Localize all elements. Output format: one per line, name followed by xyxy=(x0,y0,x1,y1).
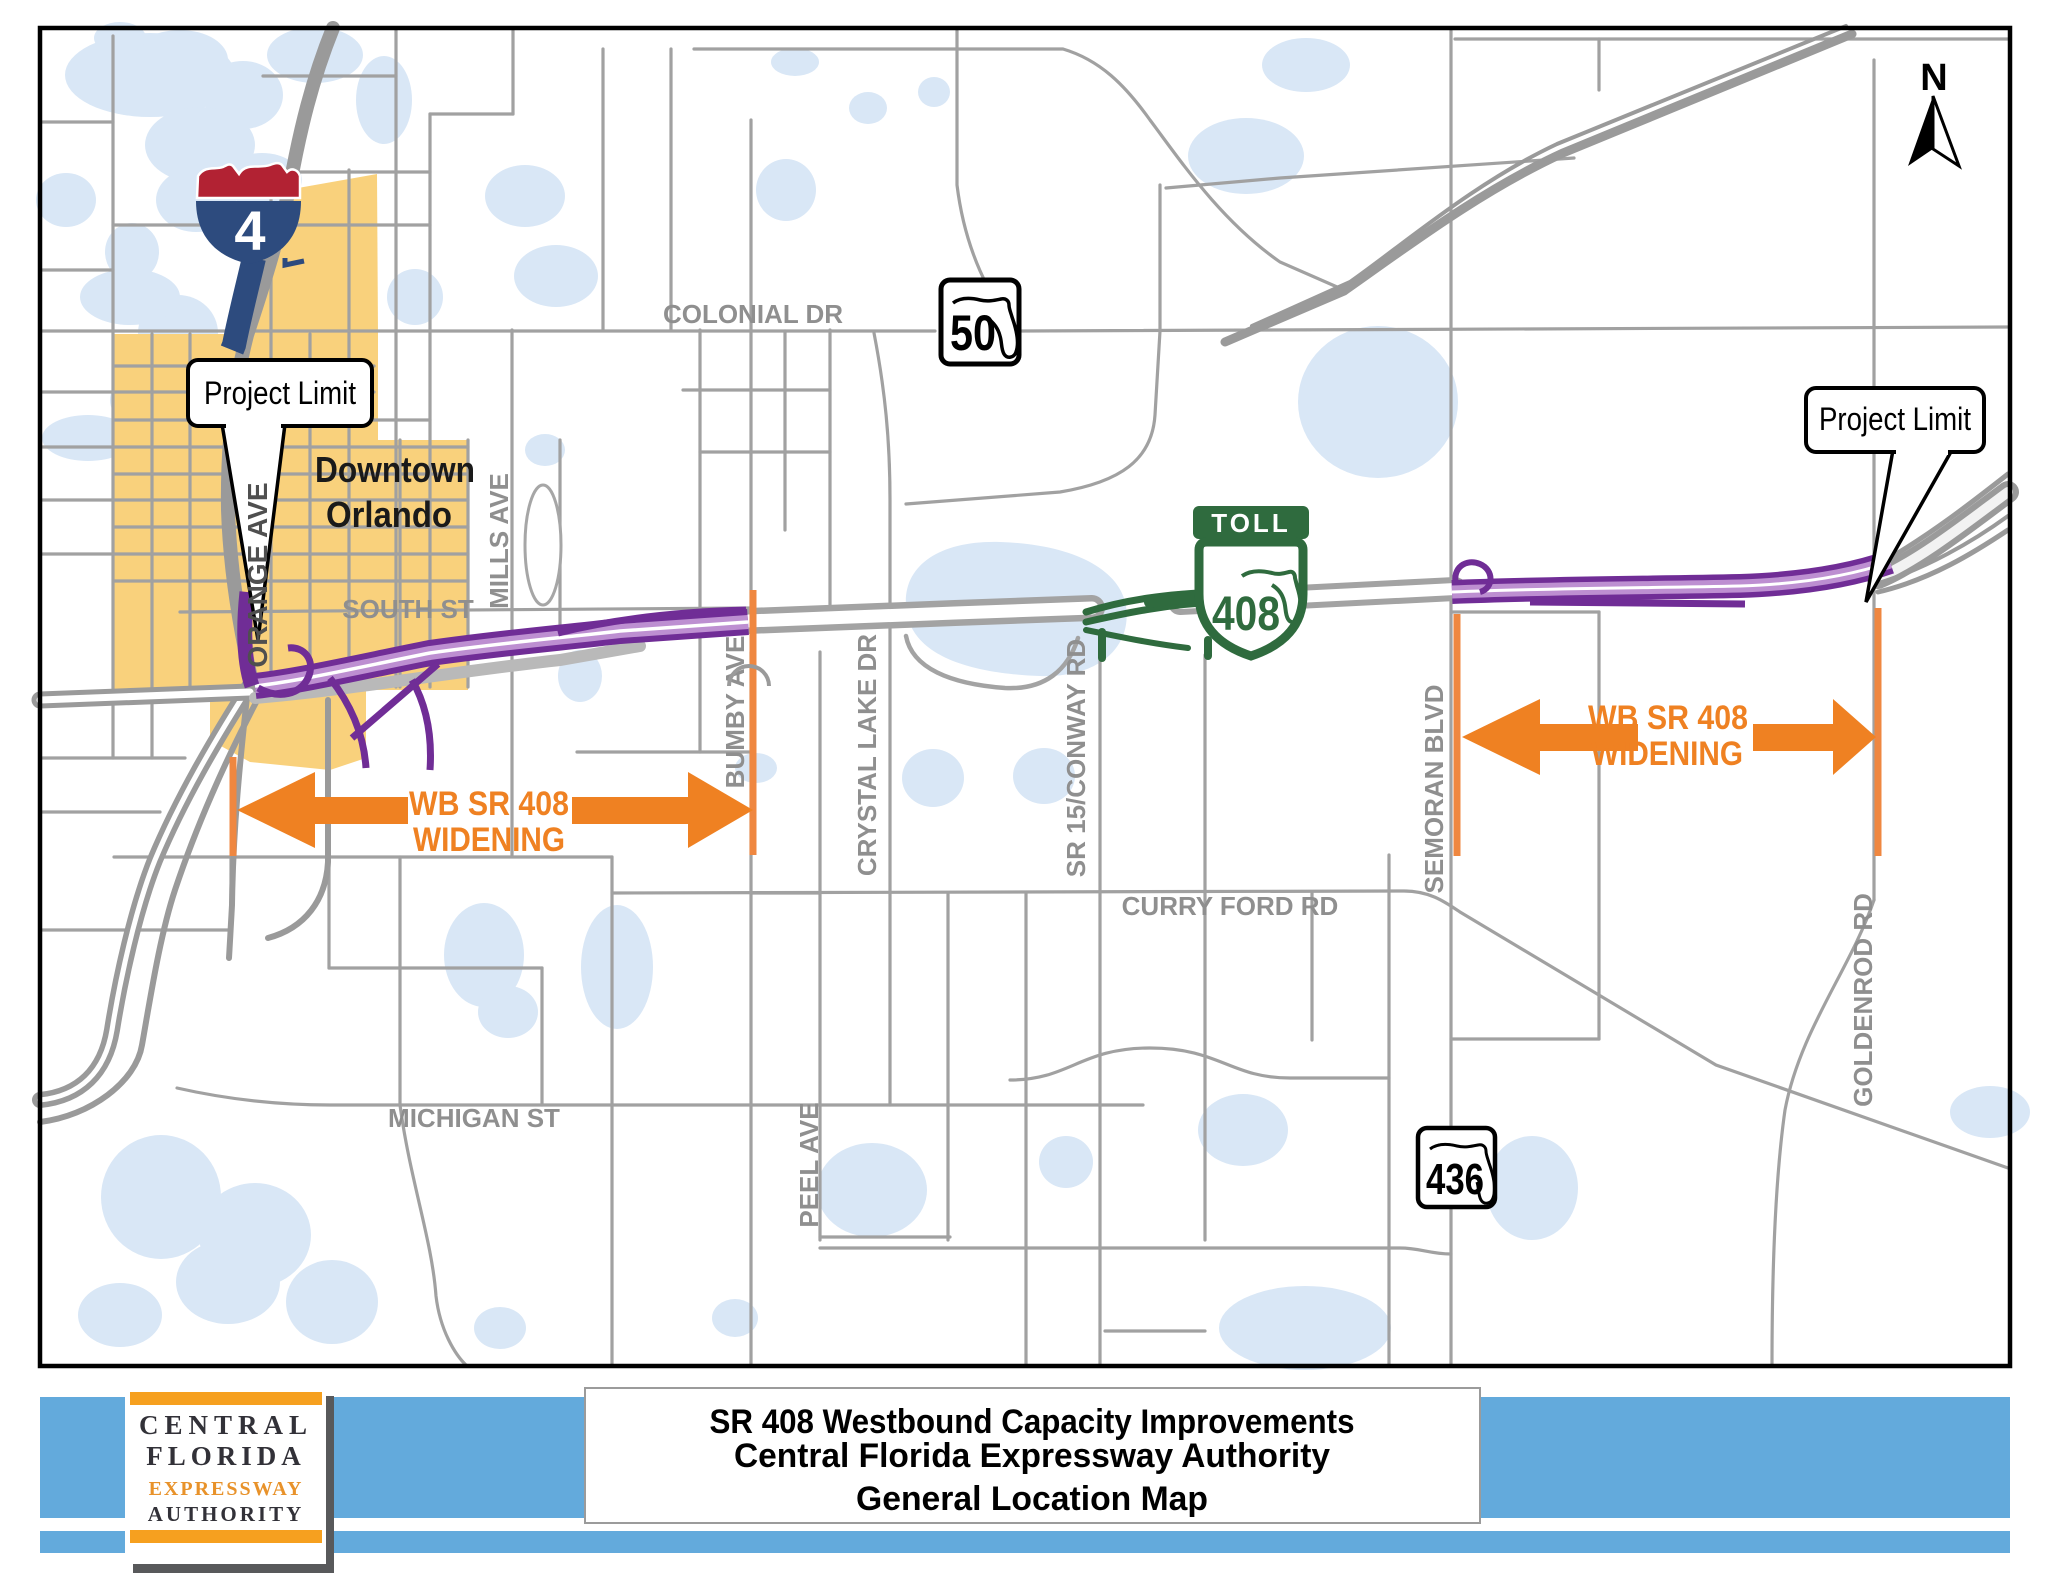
svg-text:4: 4 xyxy=(234,199,265,262)
svg-text:MILLS AVE: MILLS AVE xyxy=(484,473,514,609)
svg-text:AUTHORITY: AUTHORITY xyxy=(148,1502,305,1526)
svg-text:Downtown: Downtown xyxy=(315,449,475,490)
svg-text:SOUTH ST: SOUTH ST xyxy=(342,594,474,624)
svg-text:436: 436 xyxy=(1426,1155,1484,1204)
svg-text:408: 408 xyxy=(1212,588,1280,641)
svg-text:Central Florida Expressway Aut: Central Florida Expressway Authority xyxy=(734,1437,1330,1475)
svg-text:MICHIGAN ST: MICHIGAN ST xyxy=(388,1103,560,1133)
svg-text:CRYSTAL LAKE DR: CRYSTAL LAKE DR xyxy=(852,634,882,876)
svg-text:PEEL AVE: PEEL AVE xyxy=(794,1102,824,1227)
svg-text:Orlando: Orlando xyxy=(326,494,452,535)
svg-text:WIDENING: WIDENING xyxy=(1591,735,1743,773)
svg-text:WB SR 408: WB SR 408 xyxy=(1588,699,1748,737)
svg-text:GOLDENROD RD: GOLDENROD RD xyxy=(1848,893,1878,1107)
svg-text:EXPRESSWAY: EXPRESSWAY xyxy=(149,1478,304,1500)
svg-text:COLONIAL DR: COLONIAL DR xyxy=(663,299,843,329)
svg-text:N: N xyxy=(1920,57,1947,99)
svg-text:BUMBY AVE: BUMBY AVE xyxy=(720,636,750,789)
svg-text:50: 50 xyxy=(950,305,996,361)
svg-text:General Location Map: General Location Map xyxy=(856,1480,1208,1518)
svg-text:SR 408 Westbound Capacity Imp: SR 408 Westbound Capacity Improvements xyxy=(710,1403,1355,1441)
svg-text:CENTRAL: CENTRAL xyxy=(139,1410,313,1440)
svg-text:SEMORAN BLVD: SEMORAN BLVD xyxy=(1419,685,1449,894)
svg-text:WB SR 408: WB SR 408 xyxy=(409,785,569,823)
svg-text:Project Limit: Project Limit xyxy=(1819,401,1971,437)
svg-text:FLORIDA: FLORIDA xyxy=(146,1441,306,1471)
svg-text:TOLL: TOLL xyxy=(1211,508,1290,538)
svg-text:SR 15/CONWAY RD: SR 15/CONWAY RD xyxy=(1061,639,1091,877)
svg-text:CURRY FORD RD: CURRY FORD RD xyxy=(1122,891,1339,921)
svg-text:WIDENING: WIDENING xyxy=(413,821,565,859)
svg-text:ORANGE AVE: ORANGE AVE xyxy=(242,482,273,667)
svg-text:Project Limit: Project Limit xyxy=(204,375,356,411)
